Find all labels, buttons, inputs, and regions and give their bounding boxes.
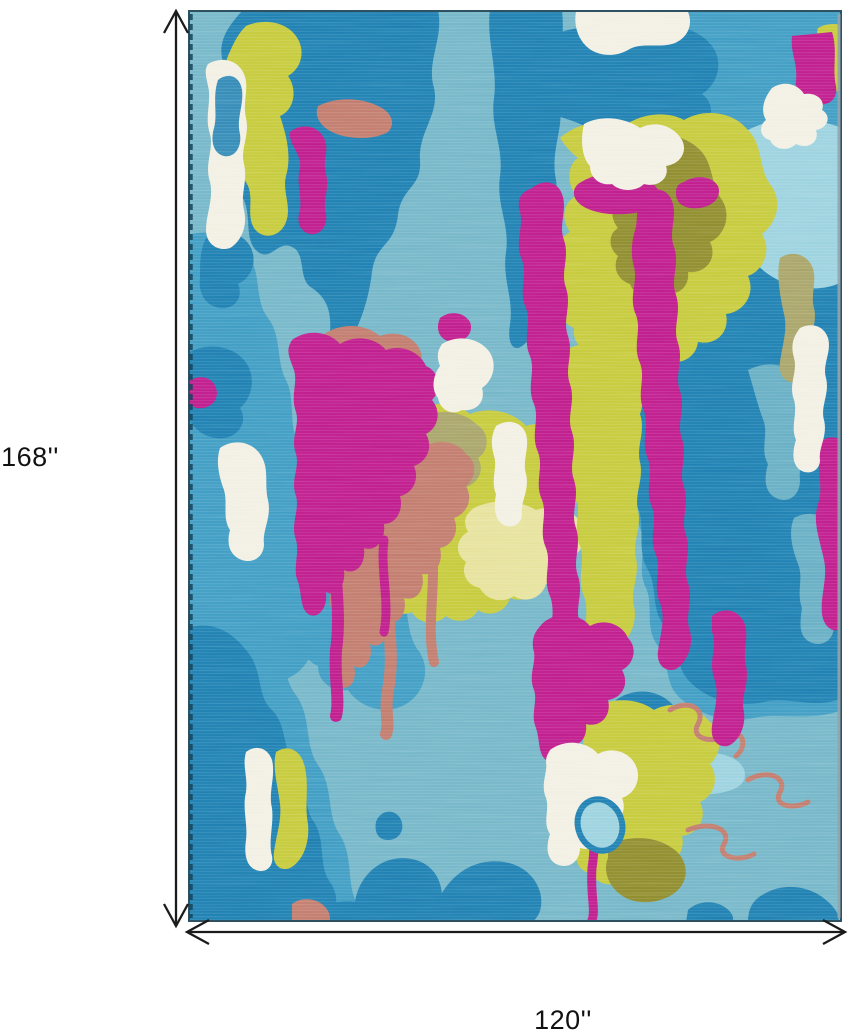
height-dimension-arrow (164, 11, 188, 926)
arrow-left-icon (187, 920, 209, 944)
arrow-up-icon (164, 11, 188, 33)
height-dimension-label: 168'' (0, 444, 60, 471)
rug-artwork-svg (188, 10, 842, 922)
rug-texture-overlay (188, 10, 842, 922)
product-dimension-figure: 168'' 120'' (0, 0, 850, 1032)
width-dimension-label: 120'' (528, 1007, 598, 1032)
width-dimension-arrow (187, 920, 845, 944)
rug-image (188, 10, 842, 922)
arrow-right-icon (823, 920, 845, 944)
arrow-down-icon (164, 904, 188, 926)
